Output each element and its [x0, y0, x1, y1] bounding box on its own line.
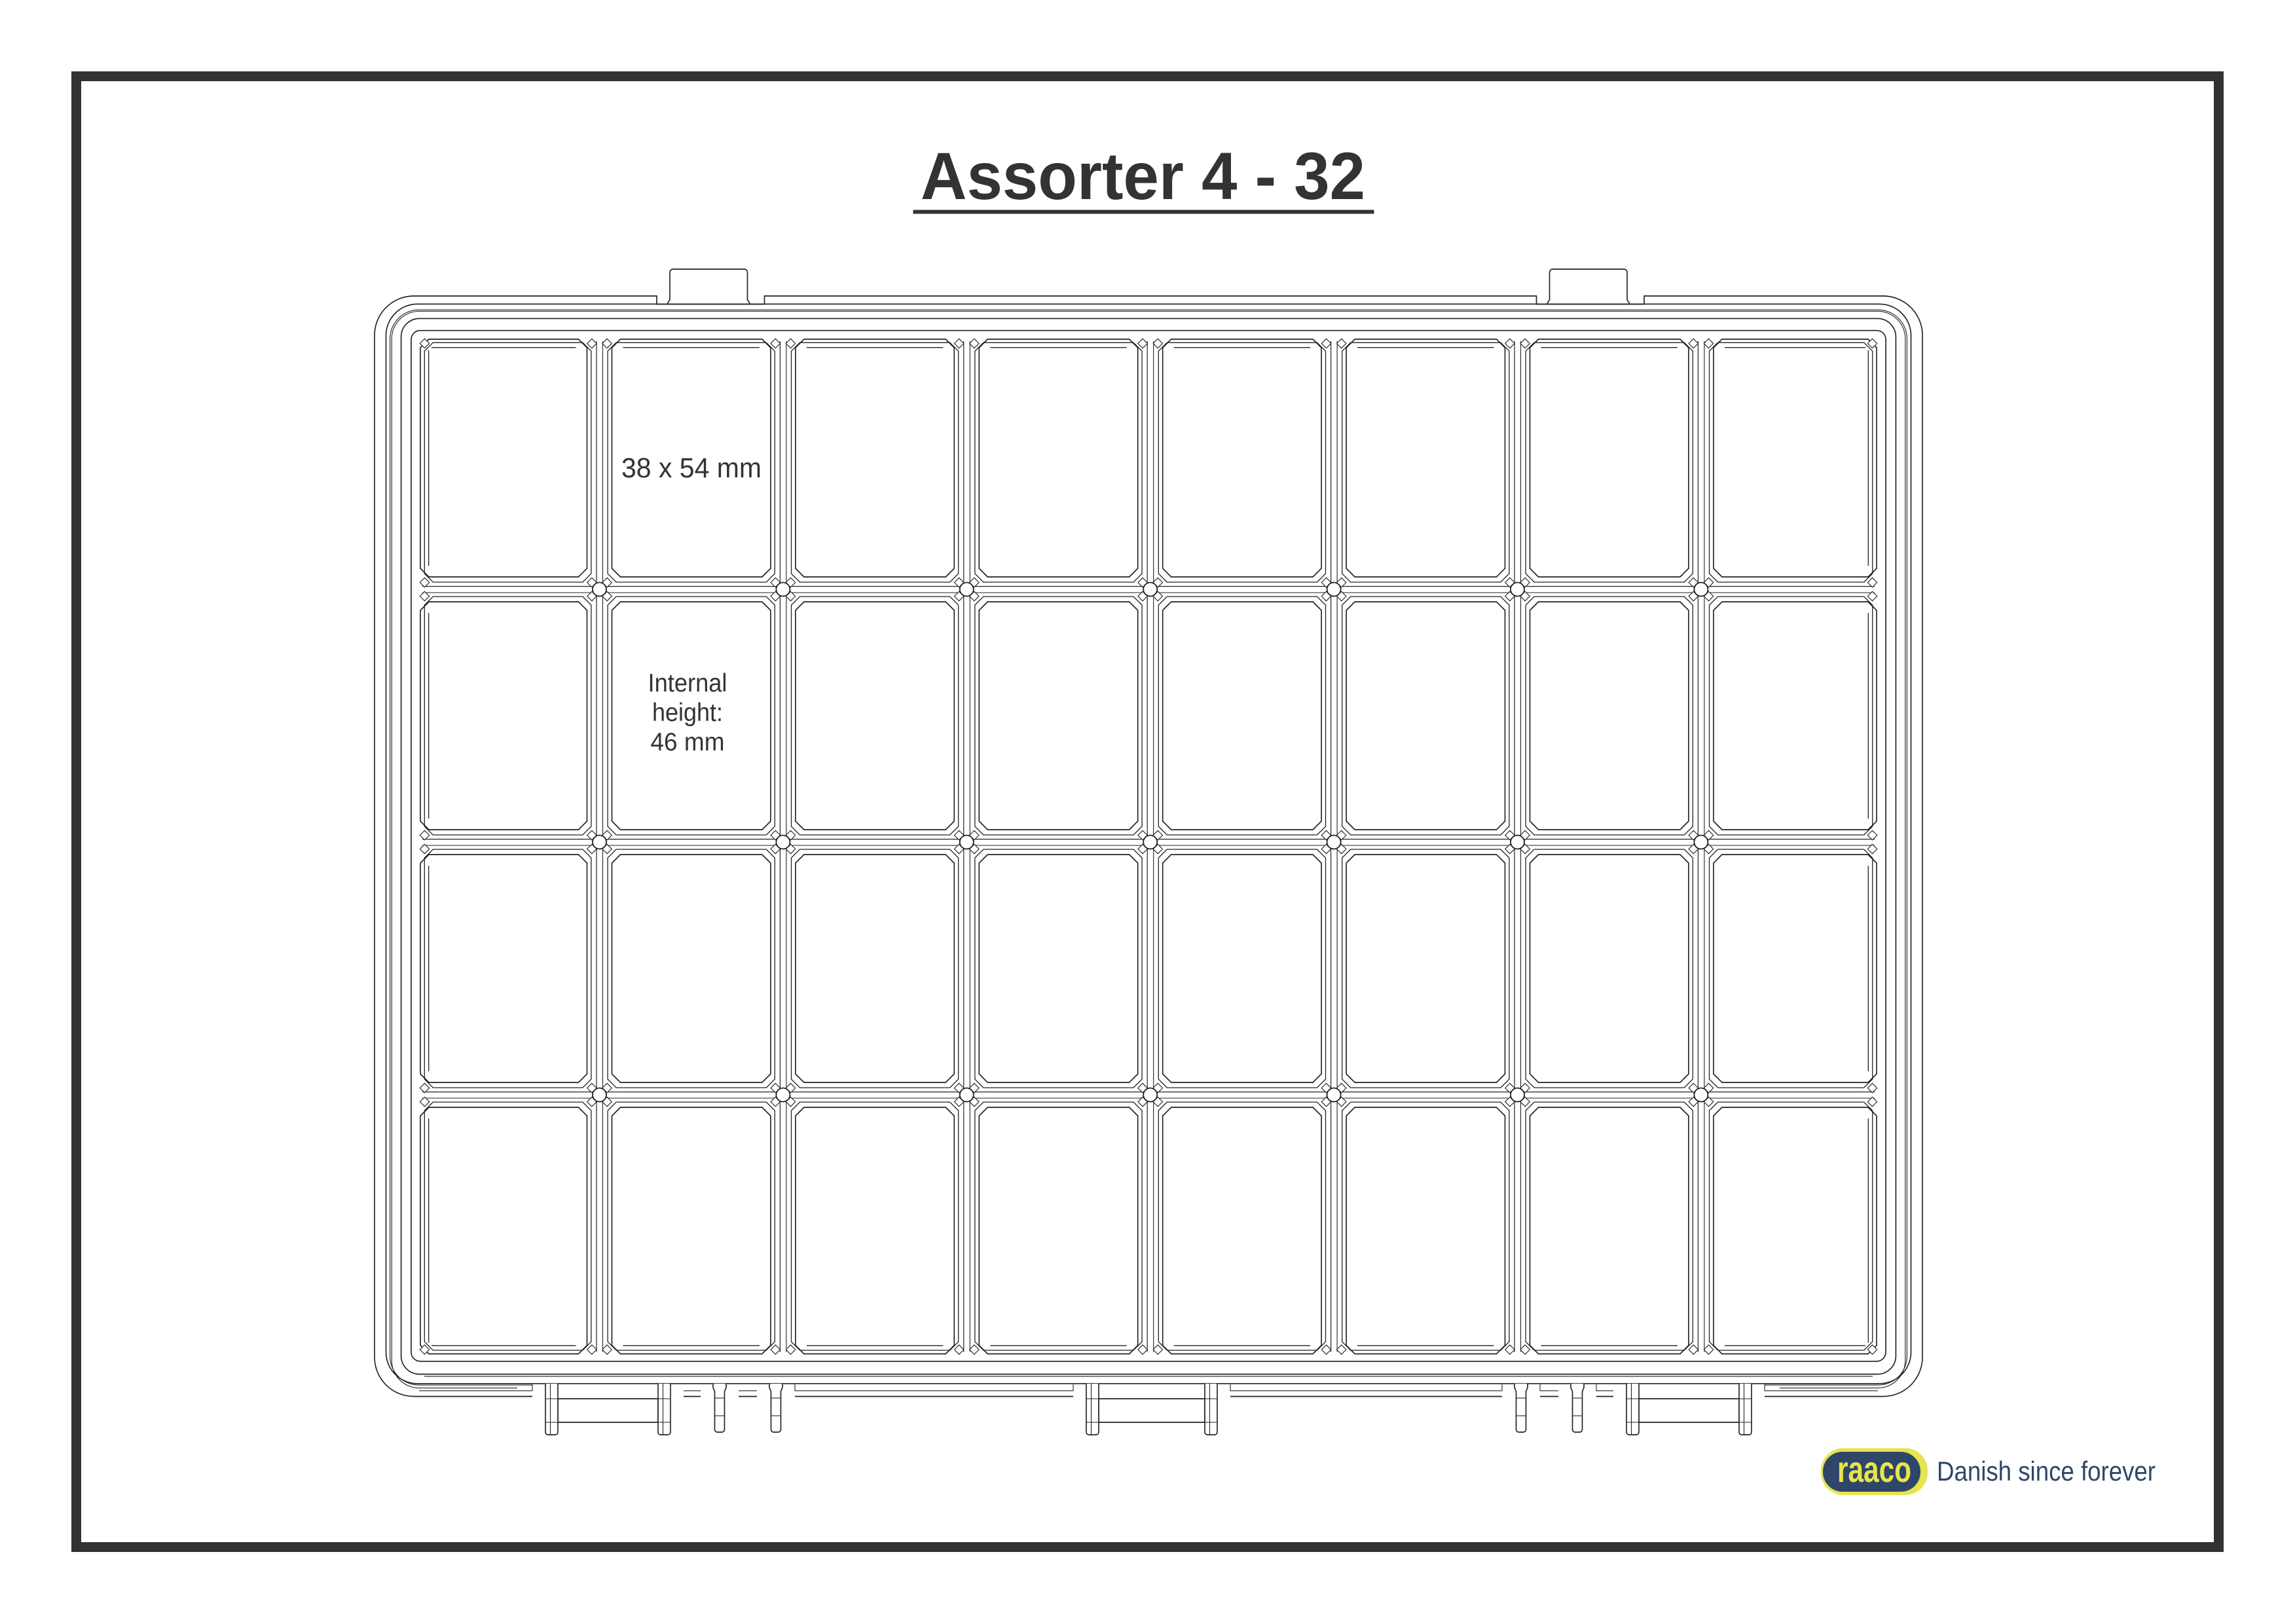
svg-text:Assorter 4 - 32: Assorter 4 - 32 — [921, 139, 1365, 213]
svg-text:Danish since forever: Danish since forever — [1937, 1456, 2156, 1486]
svg-text:Internal: Internal — [648, 669, 727, 697]
svg-text:46 mm: 46 mm — [651, 728, 725, 756]
svg-text:38 x 54 mm: 38 x 54 mm — [621, 452, 762, 484]
svg-text:raaco: raaco — [1837, 1449, 1911, 1490]
svg-text:height:: height: — [652, 699, 723, 727]
